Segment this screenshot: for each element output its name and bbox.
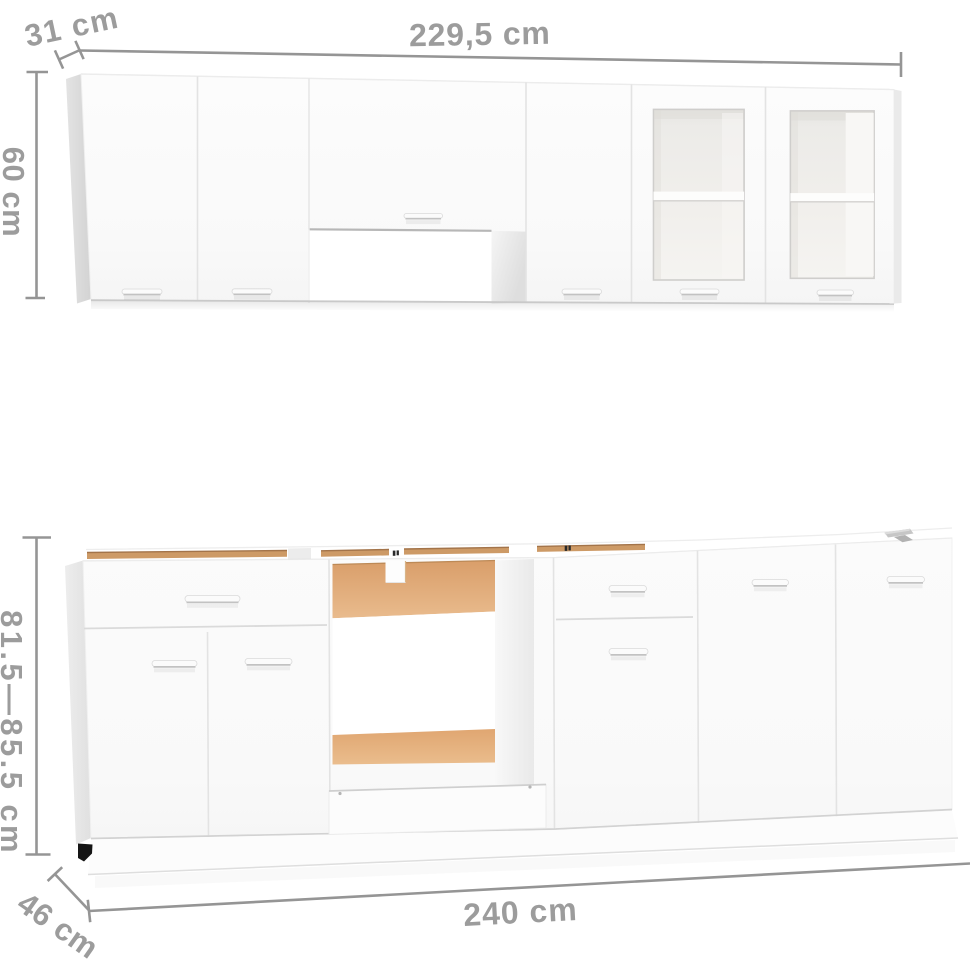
svg-text:229,5 cm: 229,5 cm [409,15,551,53]
svg-text:81.5—85.5 cm: 81.5—85.5 cm [0,610,29,856]
svg-text:60 cm: 60 cm [0,147,31,237]
svg-text:240 cm: 240 cm [462,891,578,933]
